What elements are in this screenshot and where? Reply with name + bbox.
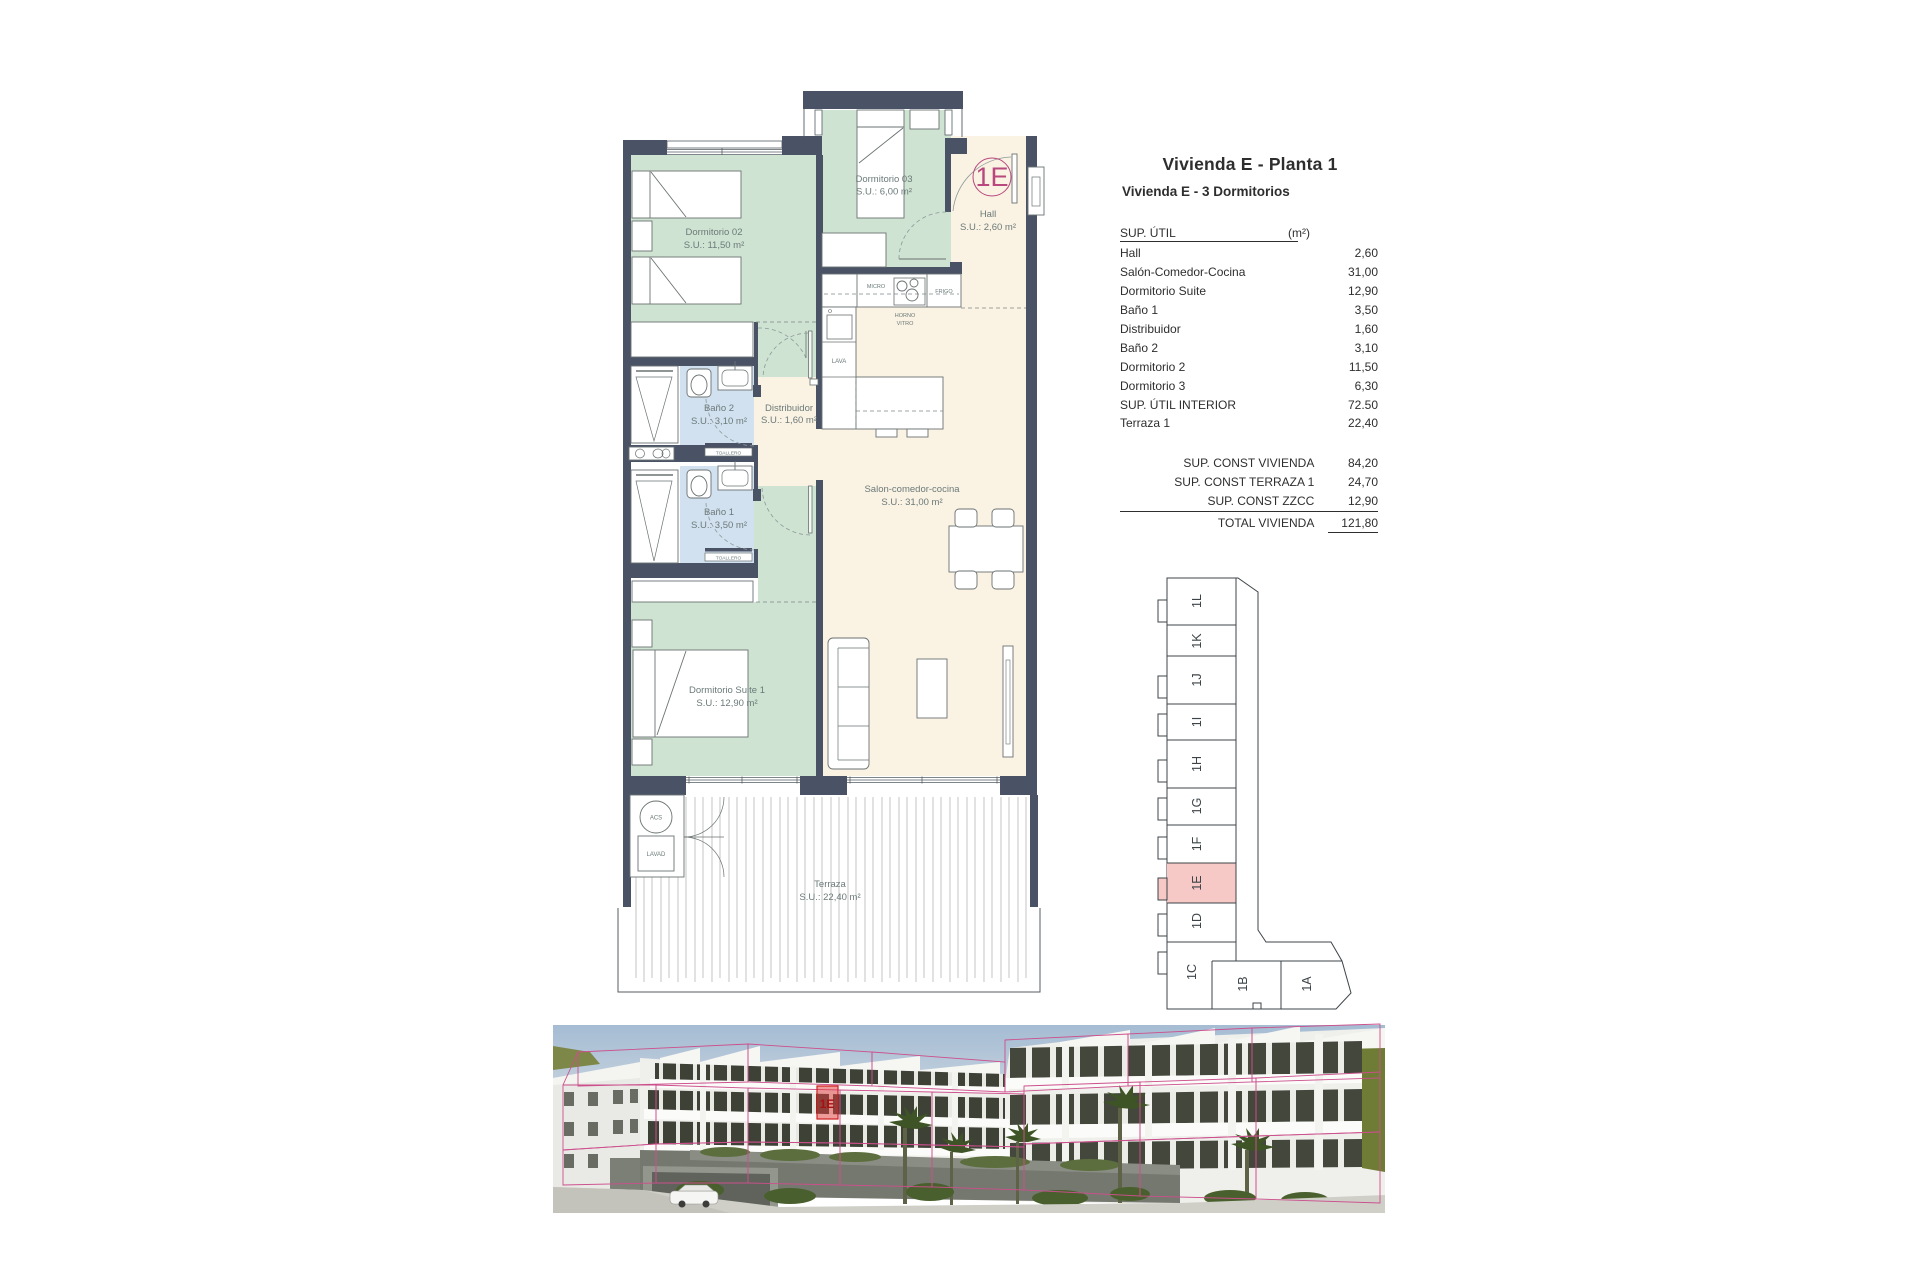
svg-text:LAVA: LAVA [832, 359, 846, 365]
svg-text:1I: 1I [1190, 717, 1204, 727]
svg-text:Distribuidor: Distribuidor [765, 403, 813, 414]
svg-text:S.U.: 2,60 m²: S.U.: 2,60 m² [960, 222, 1016, 233]
svg-text:1A: 1A [1300, 976, 1314, 992]
svg-text:S.U.: 11,50 m²: S.U.: 11,50 m² [684, 240, 745, 251]
svg-text:1H: 1H [1190, 756, 1204, 772]
svg-text:TOALLERO: TOALLERO [716, 451, 742, 457]
svg-text:S.U.: 3,10 m²: S.U.: 3,10 m² [691, 416, 747, 427]
svg-text:1K: 1K [1190, 633, 1204, 649]
svg-text:Dormitorio Suite 1: Dormitorio Suite 1 [689, 685, 765, 696]
svg-text:LAVAD: LAVAD [647, 852, 666, 858]
svg-text:S.U.: 12,90 m²: S.U.: 12,90 m² [696, 698, 757, 709]
svg-text:Dormitorio 02: Dormitorio 02 [685, 227, 742, 238]
svg-text:S.U.: 3,50 m²: S.U.: 3,50 m² [691, 520, 747, 531]
svg-text:Hall: Hall [980, 209, 996, 220]
svg-text:Dormitorio 03: Dormitorio 03 [855, 174, 912, 185]
svg-text:1E: 1E [975, 162, 1008, 192]
svg-text:VITRO: VITRO [897, 321, 915, 327]
svg-text:1F: 1F [1190, 836, 1204, 851]
svg-text:HORNO: HORNO [895, 313, 916, 319]
svg-text:1G: 1G [1190, 798, 1204, 815]
svg-text:S.U.: 31,00 m²: S.U.: 31,00 m² [881, 497, 942, 508]
svg-text:Baño 2: Baño 2 [704, 403, 734, 414]
svg-text:1B: 1B [1236, 976, 1250, 991]
svg-text:1J: 1J [1190, 673, 1204, 686]
svg-text:1E: 1E [820, 1097, 835, 1111]
svg-text:1C: 1C [1185, 964, 1199, 980]
svg-text:1L: 1L [1190, 594, 1204, 608]
svg-text:S.U.: 22,40 m²: S.U.: 22,40 m² [799, 892, 860, 903]
svg-text:TOALLERO: TOALLERO [716, 556, 742, 562]
svg-text:1E: 1E [1190, 875, 1204, 890]
svg-text:Salon-comedor-cocina: Salon-comedor-cocina [864, 484, 960, 495]
svg-text:Terraza: Terraza [814, 879, 846, 890]
svg-text:S.U.: 1,60 m²: S.U.: 1,60 m² [761, 415, 817, 426]
svg-text:Baño 1: Baño 1 [704, 507, 734, 518]
svg-text:FRIGO: FRIGO [935, 289, 953, 295]
svg-text:1D: 1D [1190, 913, 1204, 929]
svg-text:ACS: ACS [650, 816, 662, 822]
svg-text:S.U.: 6,00 m²: S.U.: 6,00 m² [856, 187, 912, 198]
svg-text:MICRO: MICRO [867, 284, 886, 290]
